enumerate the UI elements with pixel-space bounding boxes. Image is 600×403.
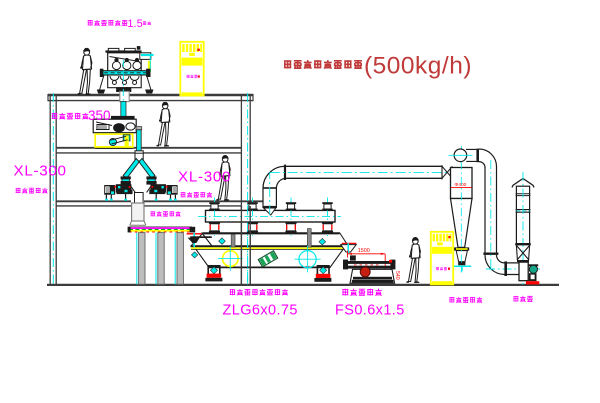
svg-text:(500kg/h): (500kg/h) — [364, 53, 472, 80]
svg-text:FS0.6x1.5: FS0.6x1.5 — [335, 303, 405, 319]
svg-text:XL-300: XL-300 — [178, 169, 231, 186]
svg-text:350: 350 — [88, 108, 111, 123]
svg-text:1500: 1500 — [358, 248, 370, 254]
svg-text:XL-300: XL-300 — [14, 163, 67, 180]
svg-text:540: 540 — [394, 271, 400, 280]
svg-text:1.5: 1.5 — [127, 18, 142, 30]
svg-text:ZLG6x0.75: ZLG6x0.75 — [223, 303, 298, 319]
